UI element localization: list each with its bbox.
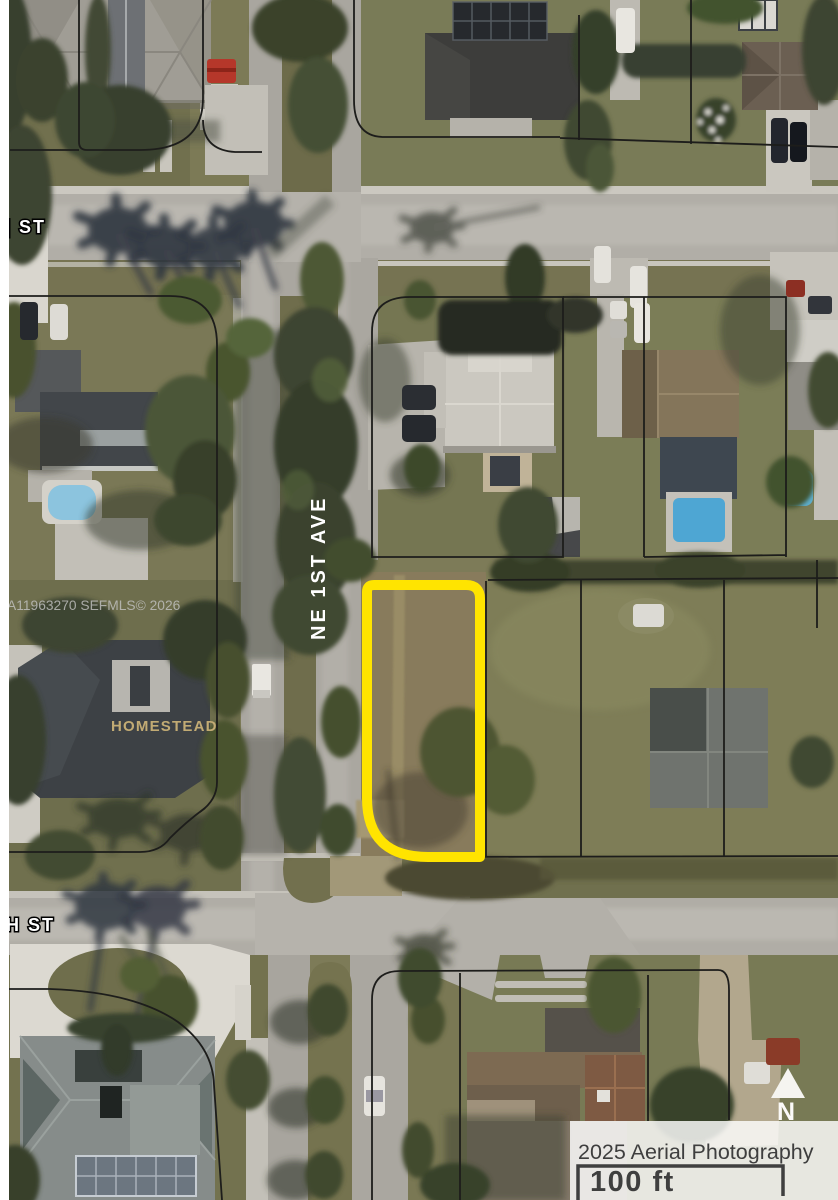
svg-text:] ST: ] ST: [4, 217, 46, 237]
svg-text:100 ft: 100 ft: [590, 1166, 675, 1198]
svg-text:HOMESTEAD: HOMESTEAD: [111, 718, 218, 735]
svg-text:A11963270 SEFMLS© 2026: A11963270 SEFMLS© 2026: [7, 598, 181, 613]
svg-text:NE 1ST AVE: NE 1ST AVE: [308, 496, 330, 640]
svg-text:H ST: H ST: [6, 915, 55, 935]
svg-text:2025 Aerial Photography: 2025 Aerial Photography: [578, 1140, 814, 1164]
